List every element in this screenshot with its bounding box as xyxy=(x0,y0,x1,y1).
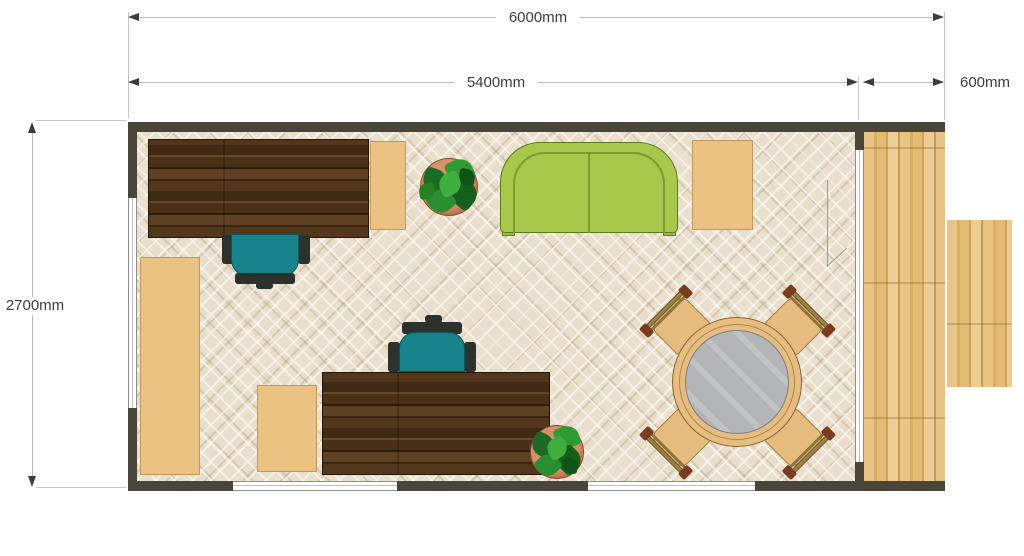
extension-line-bottom xyxy=(36,487,126,488)
dimension-label-depth: 2700mm xyxy=(2,297,68,315)
side-table-3 xyxy=(257,385,317,472)
wall-bottom-seg-porch xyxy=(864,481,945,491)
sofa-cushion-divider xyxy=(588,153,590,233)
side-table-1 xyxy=(370,141,406,230)
dimension-label-porch-width: 600mm xyxy=(952,74,1018,92)
window-left xyxy=(128,198,137,408)
wall-top xyxy=(128,122,945,132)
dining-table-top xyxy=(685,330,789,434)
partition-wall-bottom-stub xyxy=(855,462,864,491)
sliding-glass-door xyxy=(855,150,864,462)
wall-left-seg-top xyxy=(128,122,137,198)
deck-step-extension xyxy=(947,220,1012,387)
floor-plan: 6000mm 5400mm 600mm 2700mm xyxy=(0,0,1024,556)
office-desk-2 xyxy=(322,372,550,475)
dim-arrow-right-icon xyxy=(933,78,944,86)
dim-arrow-down-icon xyxy=(28,476,36,487)
wall-bench xyxy=(140,257,200,475)
office-desk-1 xyxy=(148,139,369,238)
partition-wall-top-stub xyxy=(855,122,864,150)
office-chair-1-arm-right xyxy=(298,237,310,264)
window-bottom-2 xyxy=(588,481,755,491)
extension-line-left xyxy=(128,12,129,118)
wall-bottom-seg-1 xyxy=(128,481,233,491)
door-swing-line xyxy=(827,180,828,267)
potted-plant-2 xyxy=(527,422,587,482)
office-chair-1-seat xyxy=(231,234,299,276)
window-bottom-1 xyxy=(233,481,397,491)
extension-line-room-porch xyxy=(858,76,859,120)
potted-plant-1 xyxy=(417,155,481,219)
dim-arrow-left-icon xyxy=(863,78,874,86)
wall-bottom-seg-2 xyxy=(397,481,588,491)
extension-line-top xyxy=(36,120,126,121)
wall-left-seg-bottom xyxy=(128,408,137,491)
dim-arrow-left-icon xyxy=(128,13,139,21)
dimension-label-room-width: 5400mm xyxy=(454,74,538,92)
wall-bottom-seg-3 xyxy=(755,481,858,491)
office-chair-2-seat xyxy=(399,332,465,372)
dim-arrow-right-icon xyxy=(933,13,944,21)
office-chair-2-arm-right xyxy=(464,342,476,372)
dimension-label-overall-width: 6000mm xyxy=(496,9,580,27)
office-chair-1-tab xyxy=(256,282,273,289)
dim-arrow-right-icon xyxy=(847,78,858,86)
dim-arrow-left-icon xyxy=(128,78,139,86)
extension-line-right xyxy=(944,12,945,120)
side-table-2 xyxy=(692,140,753,230)
dim-arrow-up-icon xyxy=(28,122,36,133)
dimension-line-porch-width xyxy=(863,82,940,83)
porch-deck-floor xyxy=(864,132,945,481)
